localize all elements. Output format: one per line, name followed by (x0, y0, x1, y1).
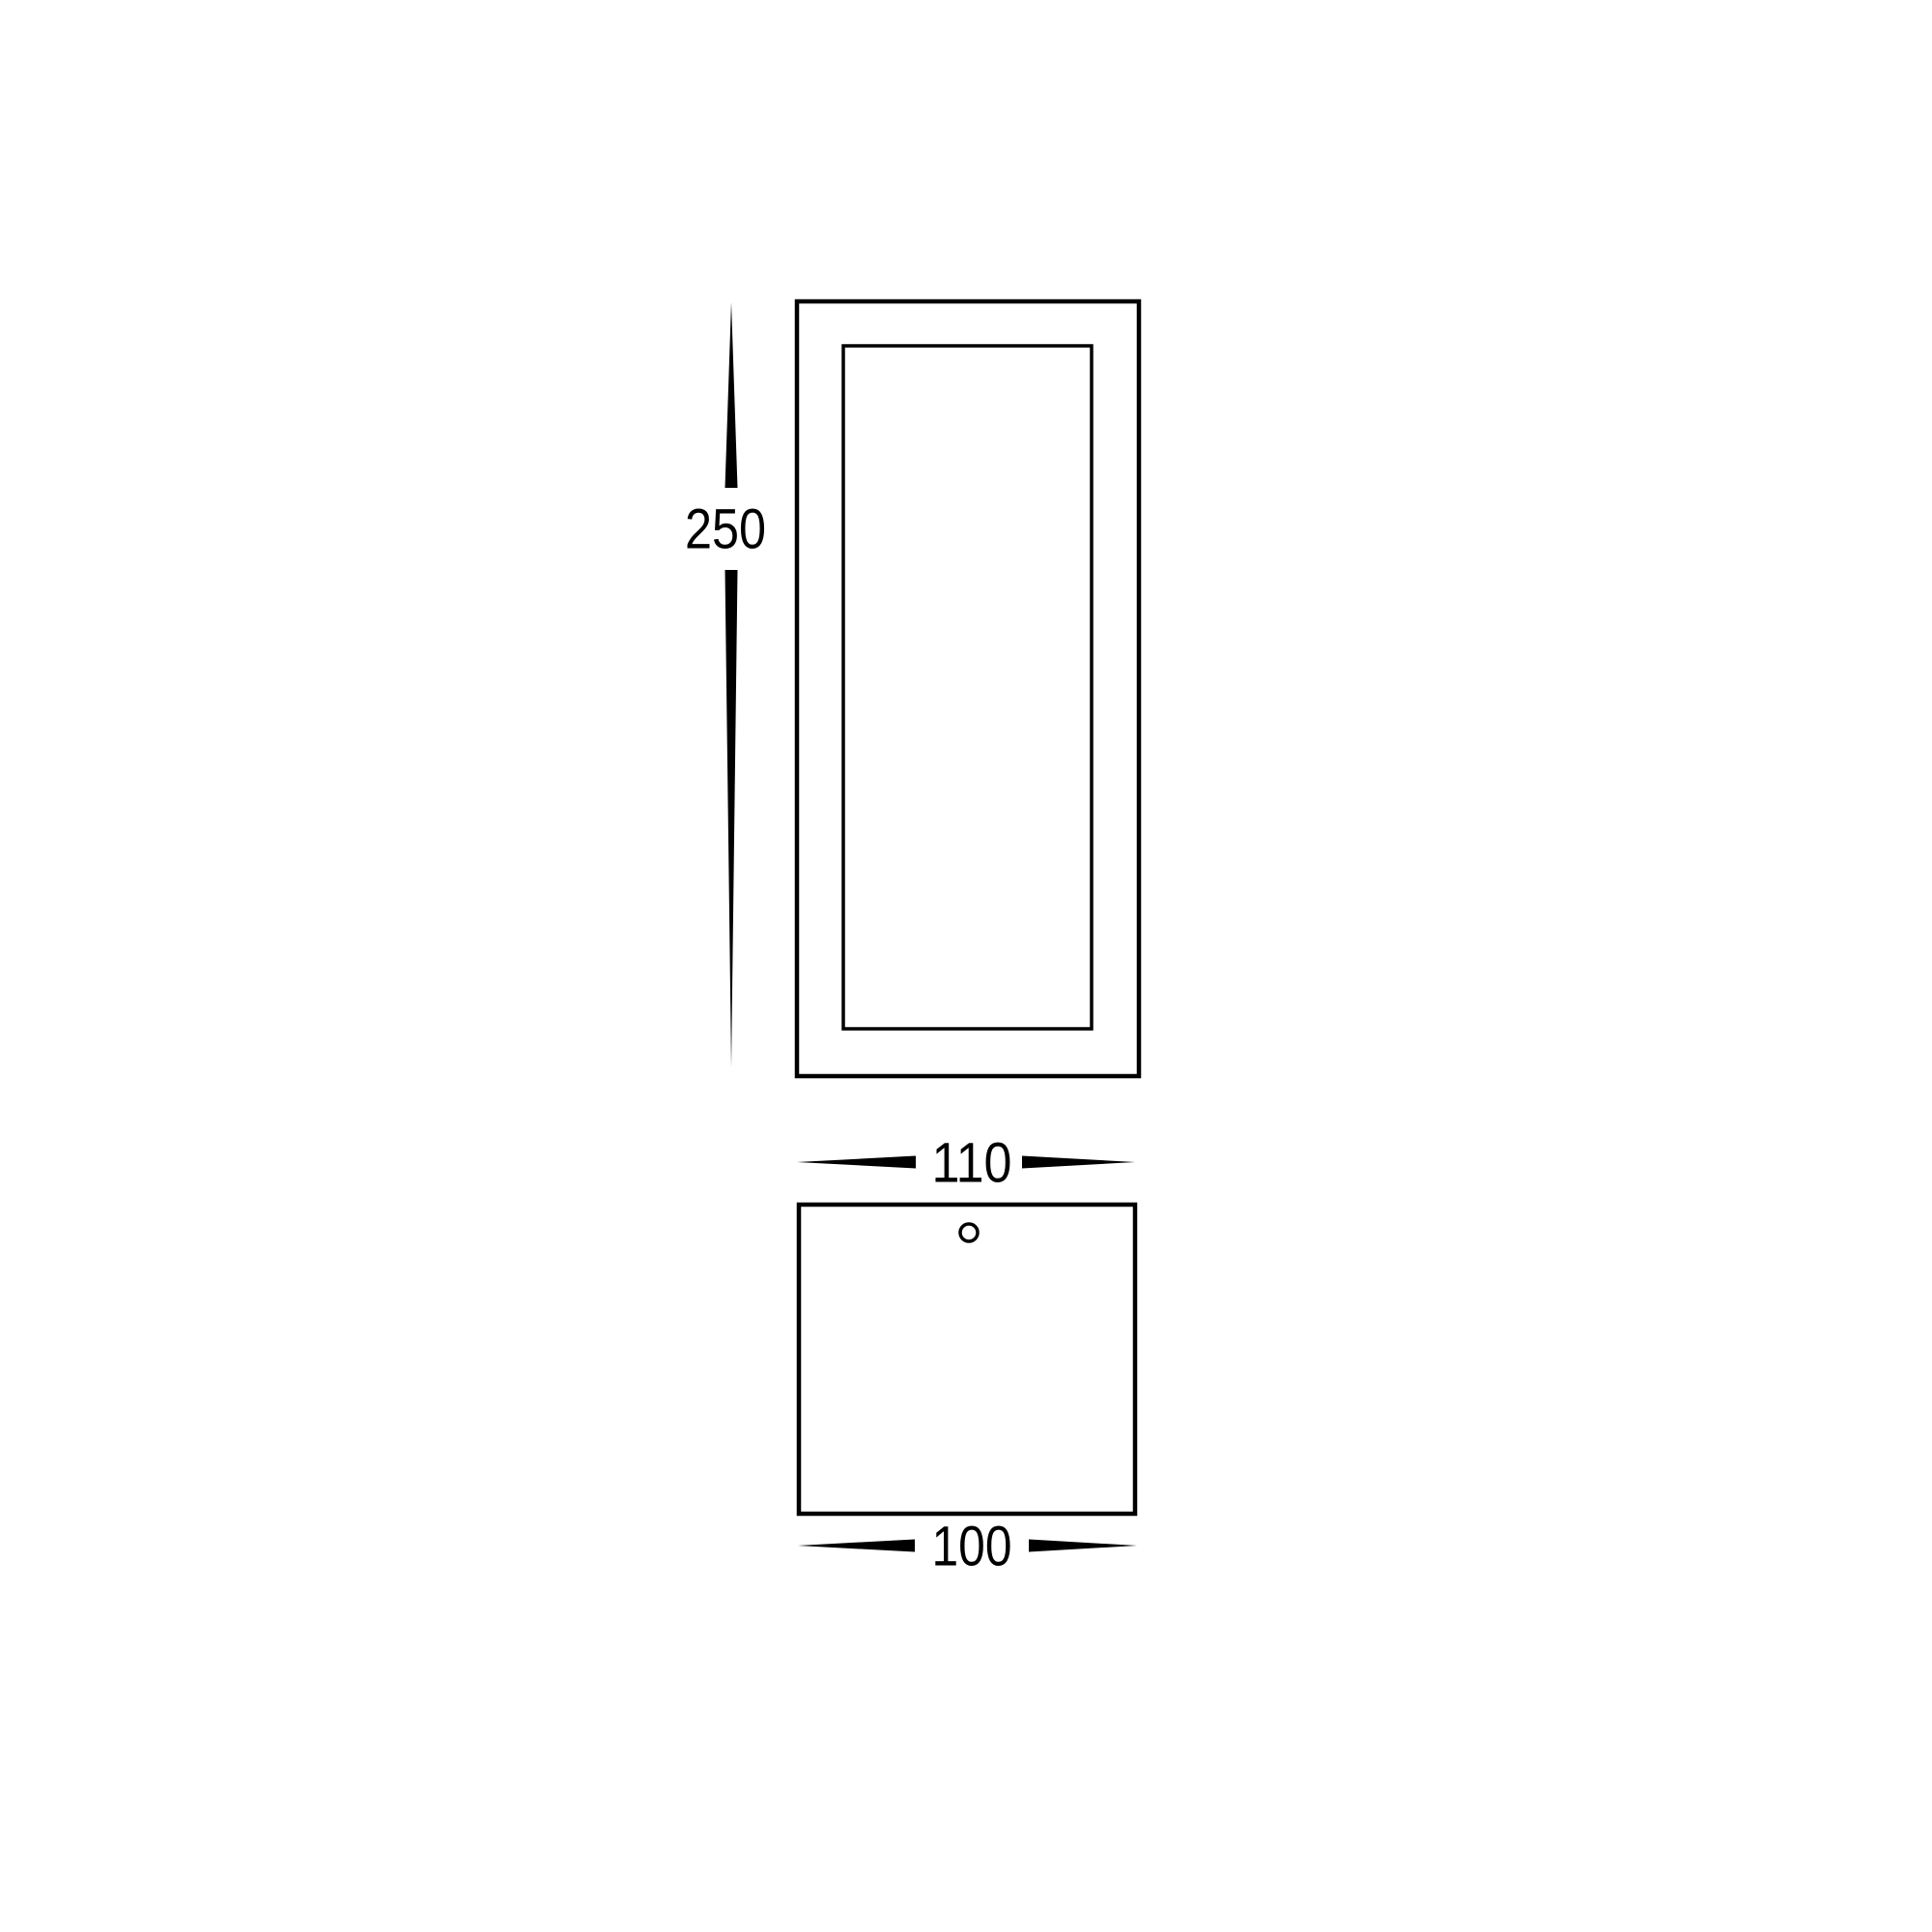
top-view-outline (799, 1205, 1135, 1514)
width-dim-arrow-left-icon (797, 1156, 916, 1169)
height-dimension: 250 (685, 302, 766, 1067)
depth-dim-label: 100 (932, 1516, 1012, 1578)
top-view (799, 1205, 1135, 1514)
drawing-canvas: 250 110 100 (0, 0, 1932, 1932)
width-dim-label: 110 (932, 1132, 1012, 1195)
height-dim-label: 250 (685, 498, 766, 561)
front-view (797, 301, 1139, 1076)
height-dim-arrow-down-icon (725, 570, 738, 1067)
front-view-inner-panel-outline (843, 346, 1092, 1029)
width-dim-arrow-right-icon (1022, 1156, 1135, 1169)
depth-dimension: 100 (798, 1516, 1137, 1578)
width-dimension: 110 (797, 1132, 1135, 1195)
technical-drawing: 250 110 100 (0, 0, 1932, 1932)
depth-dim-arrow-right-icon (1029, 1540, 1137, 1552)
depth-dim-arrow-left-icon (798, 1540, 915, 1552)
mounting-hole-icon (960, 1224, 978, 1241)
height-dim-arrow-up-icon (725, 302, 738, 488)
front-view-outer-outline (797, 301, 1139, 1076)
